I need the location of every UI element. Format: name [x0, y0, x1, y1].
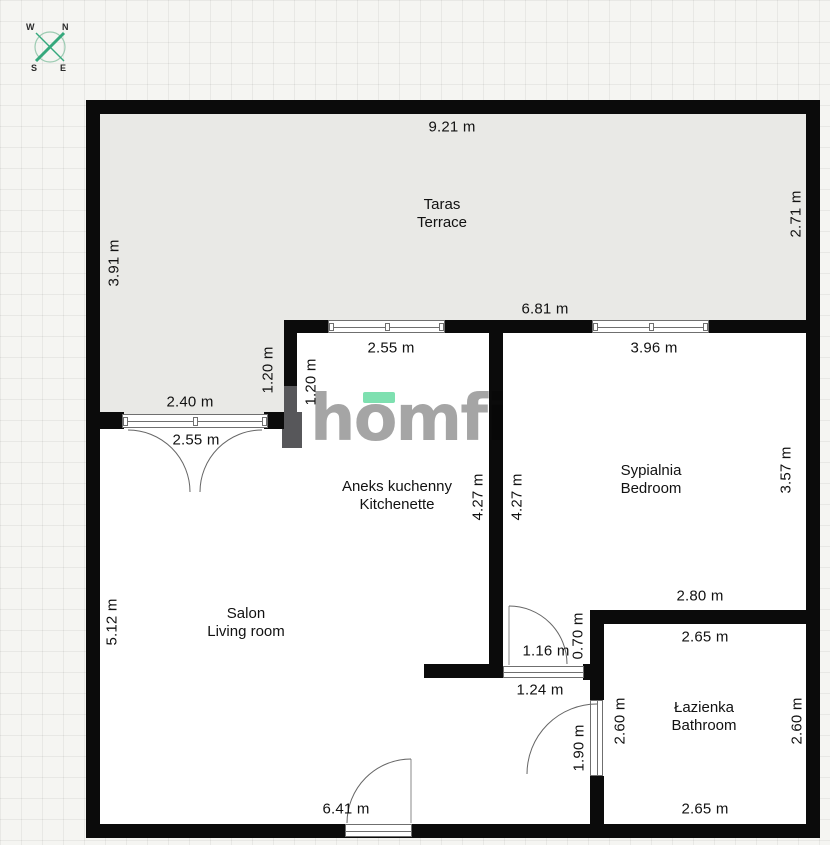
wall-terrace-step-corner — [282, 412, 302, 448]
room-label-bedroom: Sypialnia Bedroom — [621, 462, 682, 498]
bedroom-window — [592, 320, 709, 333]
room-name-pl: Sypialnia — [621, 462, 682, 480]
compass-e: E — [60, 63, 66, 73]
dim-terrace-left-depth: 3.91 m — [106, 239, 123, 286]
room-name-pl: Aneks kuchenny — [342, 478, 452, 496]
compass-s: S — [31, 63, 37, 73]
dim-step-left: 1.20 m — [260, 346, 277, 393]
dim-terrace-door-inner: 2.55 m — [172, 432, 219, 449]
hall-door-threshold — [503, 666, 584, 678]
dim-terrace-door-width: 2.40 m — [166, 394, 213, 411]
room-label-bathroom: Łazienka Bathroom — [671, 699, 736, 735]
room-label-living-room: Salon Living room — [207, 605, 285, 641]
terrace-door-frame — [122, 414, 268, 428]
compass-rose: W N S E — [18, 16, 82, 80]
wall-hall-stub — [424, 664, 503, 678]
compass-w: W — [26, 22, 35, 32]
room-name-pl: Łazienka — [671, 699, 736, 717]
wall-bathroom-left-upper — [590, 610, 604, 700]
dim-kitchen-wall-left: 4.27 m — [470, 473, 487, 520]
room-label-terrace: Taras Terrace — [417, 196, 467, 232]
wall-bathroom-top — [590, 610, 806, 624]
dim-step-right: 1.20 m — [303, 358, 320, 405]
room-label-kitchenette: Aneks kuchenny Kitchenette — [342, 478, 452, 514]
compass-n: N — [62, 22, 69, 32]
wall-terrace-door-stub — [100, 412, 124, 429]
kitchenette-window — [328, 320, 445, 333]
wall-terrace-step — [284, 320, 297, 388]
wall-outer-left — [86, 100, 100, 838]
floorplan-canvas: W N S E — [0, 0, 830, 845]
dim-bedroom-bottom-width: 2.80 m — [676, 588, 723, 605]
room-name-en: Bathroom — [671, 717, 736, 735]
wall-outer-top — [86, 100, 820, 114]
room-name-en: Kitchenette — [342, 496, 452, 514]
room-name-en: Bedroom — [621, 480, 682, 498]
dim-top-width: 9.21 m — [428, 119, 475, 136]
dim-bedroom-height: 3.57 m — [778, 446, 795, 493]
wall-kitchen-bedroom — [489, 333, 503, 678]
dim-hall-width: 1.24 m — [516, 682, 563, 699]
dim-living-room-height: 5.12 m — [104, 598, 121, 645]
wall-bathroom-left-lower — [590, 776, 604, 824]
dim-bathroom-right-height: 2.60 m — [789, 697, 806, 744]
dim-hall-door-width: 1.16 m — [522, 643, 569, 660]
wall-terrace-step-low — [284, 386, 297, 414]
dim-kitchen-wall-right: 4.27 m — [509, 473, 526, 520]
room-terrace-left — [100, 114, 284, 424]
bathroom-door-leaf — [590, 700, 603, 776]
room-name-pl: Salon — [207, 605, 285, 623]
room-name-en: Terrace — [417, 214, 467, 232]
wall-outer-right — [806, 100, 820, 838]
dim-terrace-right-depth: 2.71 m — [788, 190, 805, 237]
room-name-pl: Taras — [417, 196, 467, 214]
dim-hall-wall: 0.70 m — [570, 612, 587, 659]
dim-bathroom-left-height: 2.60 m — [612, 697, 629, 744]
dim-living-bottom-width: 6.41 m — [322, 801, 369, 818]
dim-bathroom-top-width: 2.65 m — [681, 629, 728, 646]
dim-terrace-inner-width: 6.81 m — [521, 301, 568, 318]
dim-bathroom-bottom-width: 2.65 m — [681, 801, 728, 818]
room-name-en: Living room — [207, 623, 285, 641]
entrance-door-threshold — [345, 824, 412, 837]
wall-outer-bottom — [86, 824, 820, 838]
dim-bathroom-door-height: 1.90 m — [571, 724, 588, 771]
dim-bedroom-width: 3.96 m — [630, 340, 677, 357]
dim-kitchenette-width: 2.55 m — [367, 340, 414, 357]
